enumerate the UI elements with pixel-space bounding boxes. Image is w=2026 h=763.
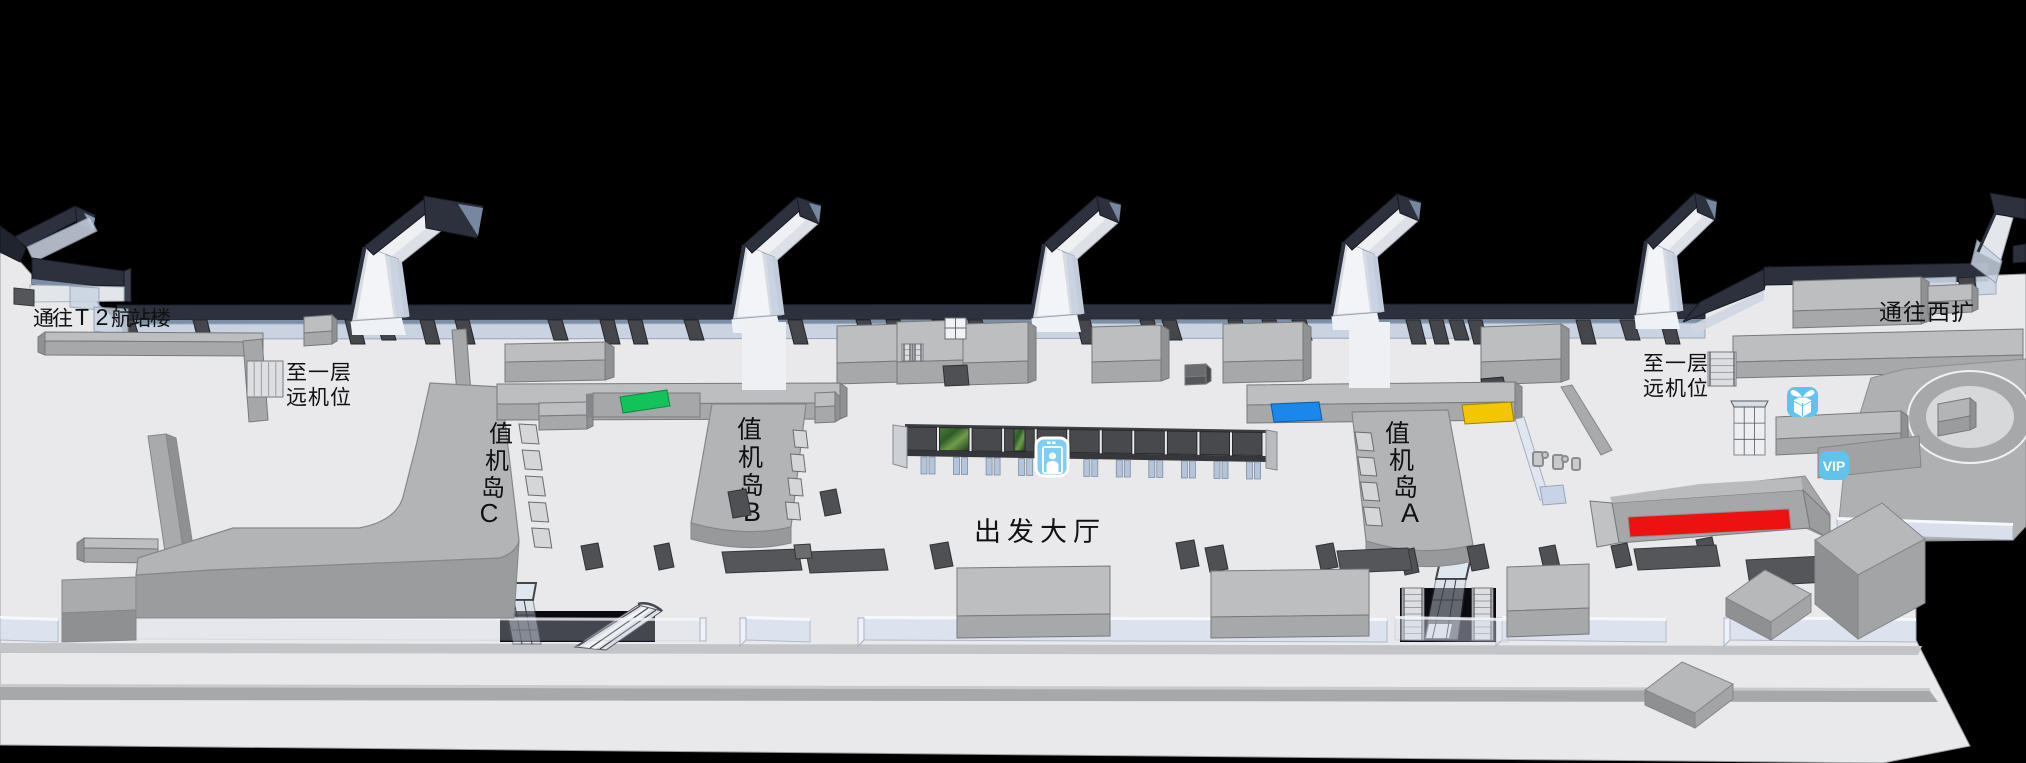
svg-text:T: T xyxy=(75,304,89,330)
svg-text:VIP: VIP xyxy=(1823,458,1846,474)
svg-text:2: 2 xyxy=(96,304,109,330)
svg-text:C: C xyxy=(480,498,499,528)
svg-text:A: A xyxy=(1401,498,1419,528)
